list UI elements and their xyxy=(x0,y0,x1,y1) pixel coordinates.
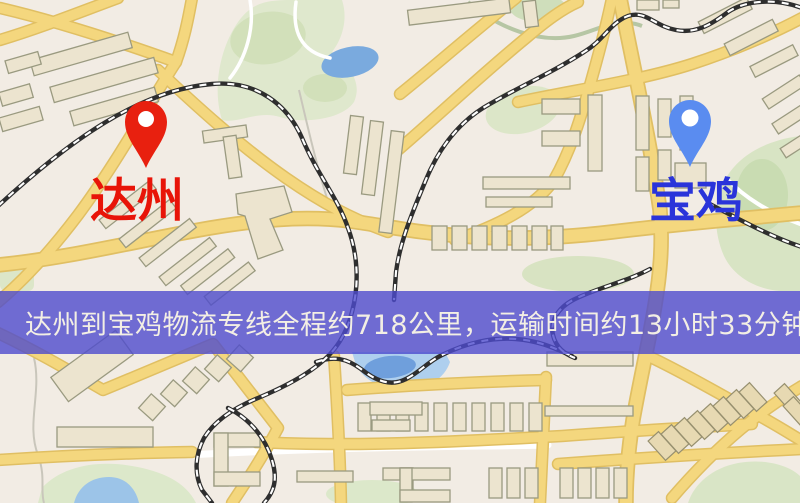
origin-label: 达州 xyxy=(90,174,184,229)
route-banner-text: 达州到宝鸡物流专线全程约718公里，运输时间约13小时33分钟. xyxy=(25,303,800,342)
route-banner: 达州到宝鸡物流专线全程约718公里，运输时间约13小时33分钟. xyxy=(0,291,800,354)
destination-label: 宝鸡 xyxy=(649,174,743,229)
map-image: 达州 宝鸡 达州到宝鸡物流专线全程约718公里，运输时间约13小时33分钟. xyxy=(0,0,800,503)
map-canvas: 达州 宝鸡 xyxy=(0,0,800,503)
